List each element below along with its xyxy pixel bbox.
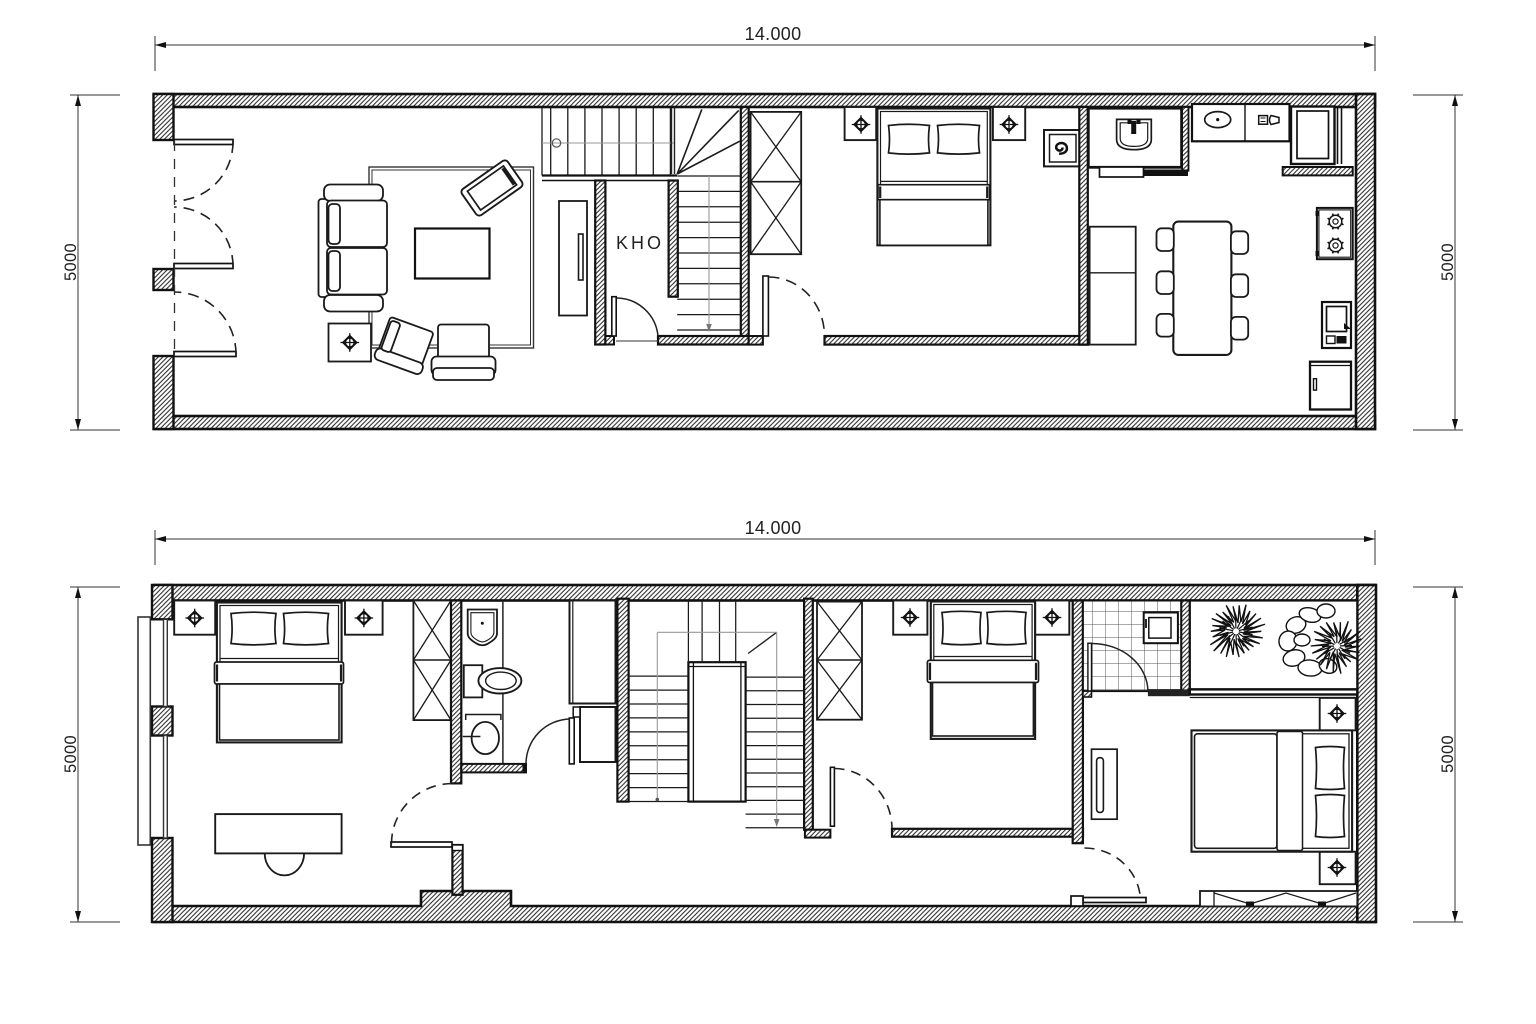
svg-text:5000: 5000 — [62, 243, 80, 281]
svg-text:5000: 5000 — [62, 735, 80, 773]
svg-text:14.000: 14.000 — [745, 518, 802, 538]
svg-text:5000: 5000 — [1439, 243, 1457, 281]
svg-text:14.000: 14.000 — [745, 24, 802, 44]
svg-text:5000: 5000 — [1439, 735, 1457, 773]
svg-text:KHO: KHO — [616, 233, 664, 253]
